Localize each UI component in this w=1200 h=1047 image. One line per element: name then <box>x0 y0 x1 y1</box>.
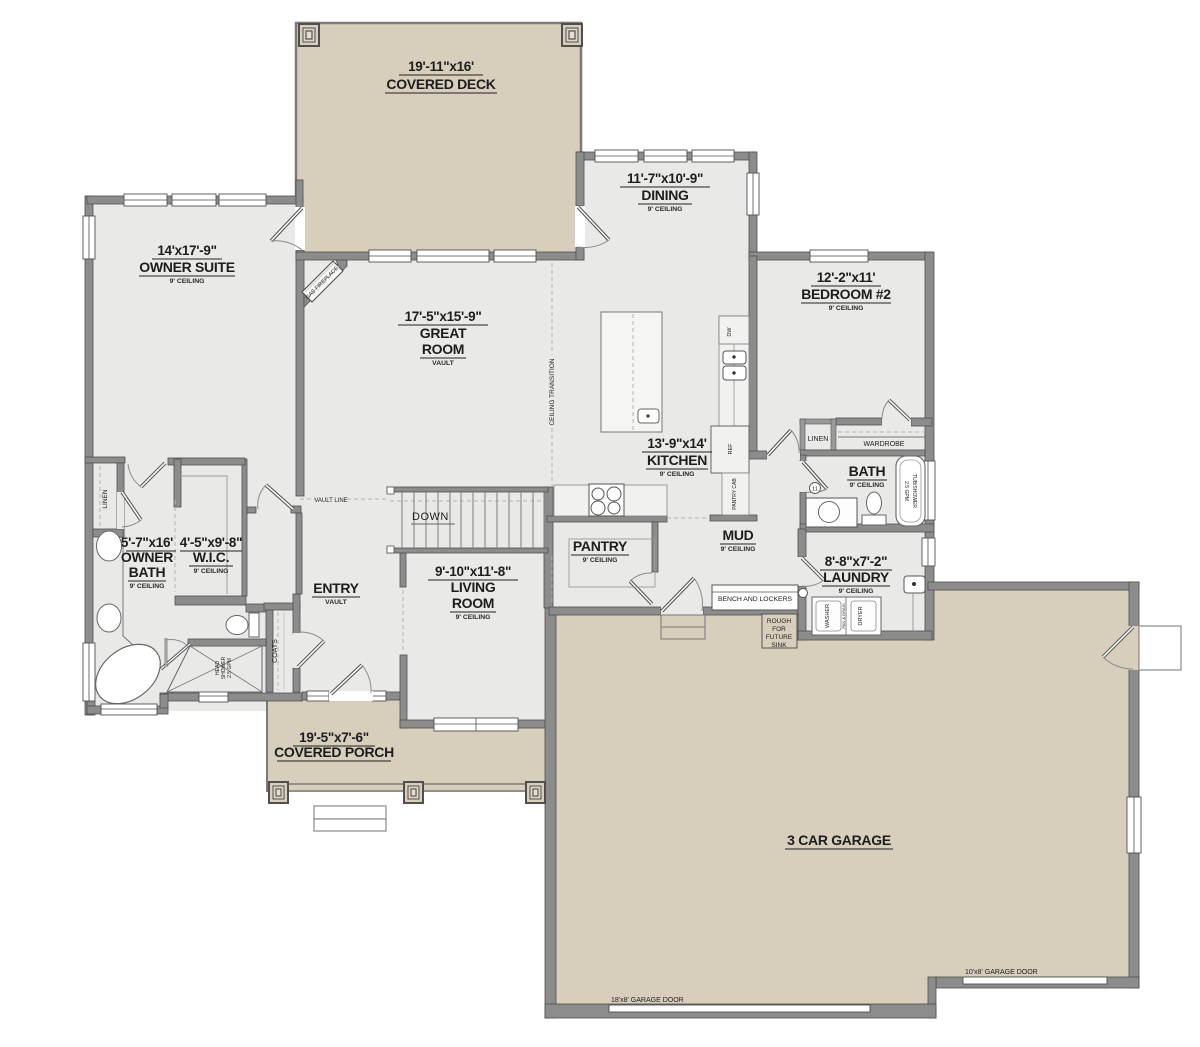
svg-text:14'x17'-9": 14'x17'-9" <box>157 243 216 258</box>
svg-text:13'-9"x14': 13'-9"x14' <box>647 436 706 451</box>
svg-text:WASHER: WASHER <box>825 604 831 628</box>
svg-text:19'-11"x16': 19'-11"x16' <box>408 59 474 74</box>
svg-text:9' CEILING: 9' CEILING <box>130 583 165 590</box>
svg-text:OWNER: OWNER <box>121 549 173 565</box>
svg-text:KITCHEN: KITCHEN <box>647 452 707 468</box>
svg-text:9' CEILING: 9' CEILING <box>456 614 491 621</box>
svg-text:BATH: BATH <box>129 564 166 580</box>
svg-text:18'x8' GARAGE DOOR: 18'x8' GARAGE DOOR <box>611 997 684 1004</box>
svg-text:COATS: COATS <box>272 639 279 663</box>
svg-text:9' CEILING: 9' CEILING <box>583 557 618 564</box>
svg-text:COVERED DECK: COVERED DECK <box>386 76 495 92</box>
svg-text:9' CEILING: 9' CEILING <box>829 305 864 312</box>
svg-text:FUTURE: FUTURE <box>766 634 793 641</box>
svg-text:LAUNDRY: LAUNDRY <box>823 569 890 585</box>
svg-text:PAN & DRAIN: PAN & DRAIN <box>841 603 846 628</box>
svg-text:DOWN: DOWN <box>412 511 449 523</box>
svg-text:11: 11 <box>812 487 818 493</box>
svg-text:LINEN: LINEN <box>102 489 109 508</box>
svg-text:LINEN: LINEN <box>808 436 829 443</box>
svg-text:4'-5"x9'-8": 4'-5"x9'-8" <box>180 535 242 550</box>
svg-text:TUB/SHOWER: TUB/SHOWER <box>911 474 917 508</box>
svg-text:WARDROBE: WARDROBE <box>864 441 905 448</box>
svg-text:SINK: SINK <box>771 642 787 649</box>
svg-text:W.I.C.: W.I.C. <box>193 549 229 565</box>
svg-text:9' CEILING: 9' CEILING <box>839 588 874 595</box>
svg-text:VAULT LINE: VAULT LINE <box>314 498 347 504</box>
svg-text:FOR: FOR <box>772 626 786 633</box>
svg-text:VAULT: VAULT <box>432 360 454 367</box>
svg-text:9' CEILING: 9' CEILING <box>660 471 695 478</box>
svg-text:DINING: DINING <box>641 187 689 203</box>
svg-text:9' CEILING: 9' CEILING <box>850 482 885 489</box>
svg-text:REF: REF <box>728 443 734 455</box>
svg-text:DRYER: DRYER <box>858 606 864 625</box>
svg-text:DW: DW <box>727 327 733 337</box>
svg-text:9' CEILING: 9' CEILING <box>194 568 229 575</box>
svg-text:MUD: MUD <box>723 527 754 543</box>
svg-text:ENTRY: ENTRY <box>313 580 359 596</box>
svg-text:9'-10"x11'-8": 9'-10"x11'-8" <box>435 564 511 579</box>
svg-text:PANTRY CAB: PANTRY CAB <box>732 478 738 510</box>
svg-text:PANTRY: PANTRY <box>573 538 628 554</box>
svg-text:ROUGH: ROUGH <box>767 618 792 625</box>
svg-text:12'-2"x11': 12'-2"x11' <box>817 270 876 285</box>
svg-text:9' CEILING: 9' CEILING <box>721 546 756 553</box>
svg-text:9' CEILING: 9' CEILING <box>648 206 683 213</box>
svg-text:2.5 GPM: 2.5 GPM <box>903 481 909 501</box>
svg-text:9' CEILING: 9' CEILING <box>170 278 205 285</box>
svg-text:OWNER SUITE: OWNER SUITE <box>139 259 234 275</box>
svg-text:BATH: BATH <box>849 463 886 479</box>
svg-text:LIVING: LIVING <box>451 579 496 595</box>
svg-text:8'-8"x7'-2": 8'-8"x7'-2" <box>825 554 887 569</box>
svg-text:VAULT: VAULT <box>325 599 347 606</box>
svg-text:19'-5"x7'-6": 19'-5"x7'-6" <box>299 730 369 745</box>
svg-text:ROOM: ROOM <box>452 595 494 611</box>
svg-text:5'-7"x16': 5'-7"x16' <box>121 535 173 550</box>
svg-text:ROOM: ROOM <box>422 341 464 357</box>
svg-text:11'-7"x10'-9": 11'-7"x10'-9" <box>627 171 703 186</box>
svg-text:17'-5"x15'-9": 17'-5"x15'-9" <box>405 309 482 324</box>
svg-text:BENCH AND LOCKERS: BENCH AND LOCKERS <box>718 596 792 603</box>
svg-text:COVERED PORCH: COVERED PORCH <box>274 744 394 760</box>
svg-text:CEILING TRANSITION: CEILING TRANSITION <box>549 358 556 425</box>
svg-text:2.5 GPM: 2.5 GPM <box>227 658 233 678</box>
svg-text:GREAT: GREAT <box>420 325 467 341</box>
svg-text:3 CAR GARAGE: 3 CAR GARAGE <box>787 832 891 848</box>
svg-text:BEDROOM #2: BEDROOM #2 <box>801 286 891 302</box>
svg-text:10'x8' GARAGE DOOR: 10'x8' GARAGE DOOR <box>965 969 1038 976</box>
